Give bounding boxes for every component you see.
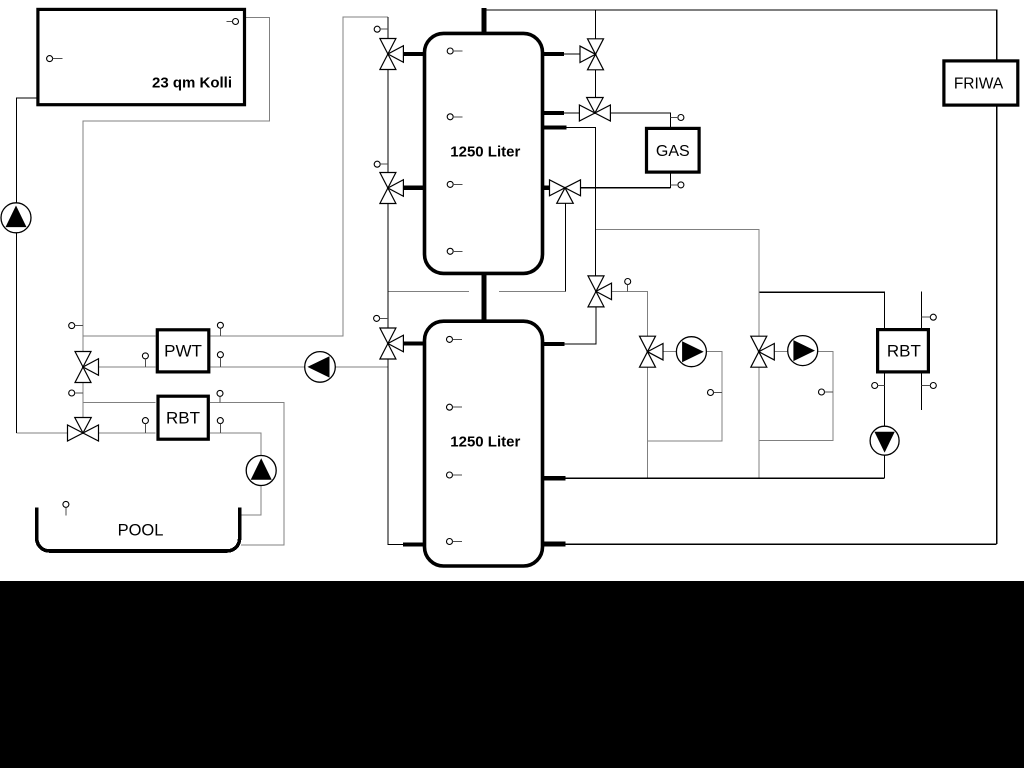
svg-text:RBT: RBT [166, 409, 200, 428]
svg-text:PWT: PWT [164, 342, 202, 361]
svg-text:RBT: RBT [887, 341, 921, 360]
svg-text:POOL: POOL [118, 522, 164, 540]
svg-text:23 qm Kolli: 23 qm Kolli [152, 75, 232, 92]
svg-text:1250 Liter: 1250 Liter [450, 144, 520, 161]
svg-text:FRIWA: FRIWA [954, 76, 1004, 93]
svg-text:1250 Liter: 1250 Liter [450, 434, 520, 451]
svg-text:GAS: GAS [656, 143, 690, 160]
